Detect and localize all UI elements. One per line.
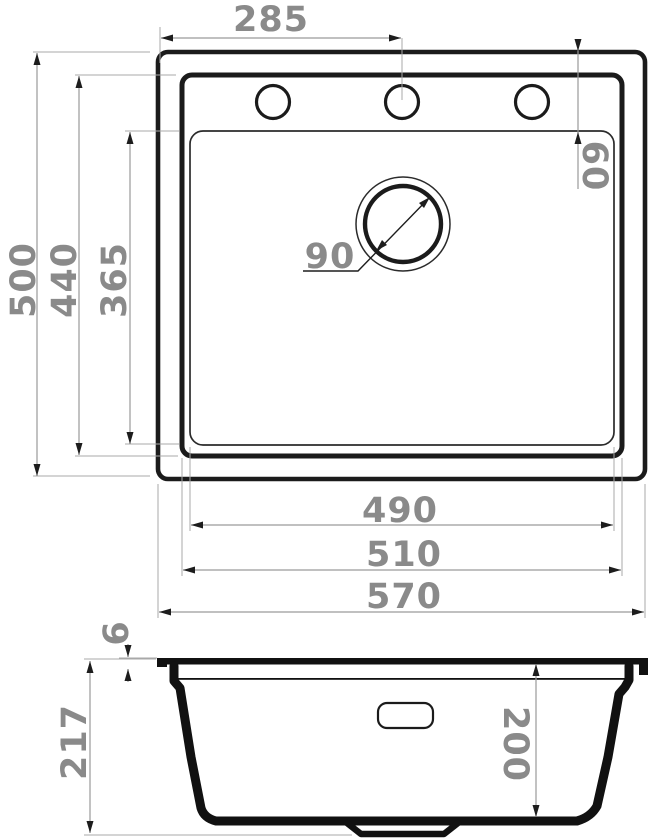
- dim-label-365: 365: [95, 242, 135, 318]
- basin-profile: [174, 666, 629, 821]
- rim-underside-line: [176, 678, 626, 680]
- dim-label-510: 510: [366, 535, 442, 575]
- sink-technical-drawing-page: 90 285 60 500: [0, 0, 656, 840]
- sink-bowl-bottom-edge: [190, 131, 614, 445]
- faucet-hole-left: [257, 86, 290, 119]
- dim-label-490: 490: [362, 491, 438, 531]
- top-view: 90 285 60 500: [4, 0, 645, 618]
- arrowhead: [376, 240, 387, 251]
- dim-label-440: 440: [45, 242, 85, 318]
- dimension-60: 60: [574, 39, 614, 191]
- sink-technical-drawing: 90 285 60 500: [0, 0, 656, 840]
- dim-label-570: 570: [366, 577, 442, 617]
- dimension-6: 6: [97, 620, 157, 682]
- dimension-200: 200: [495, 664, 540, 817]
- dimension-490: 490: [190, 447, 614, 531]
- dim-label-285: 285: [233, 0, 309, 40]
- dim-label-500: 500: [4, 242, 44, 318]
- faucet-hole-right: [516, 86, 549, 119]
- overflow-hole: [378, 703, 433, 728]
- sink-outer-edge: [158, 52, 645, 479]
- sink-bowl-edge: [182, 75, 622, 456]
- dim-label-drain-diameter: 90: [305, 237, 356, 277]
- rim-top: [157, 658, 648, 665]
- rim-right-lip: [639, 658, 648, 675]
- dim-label-200: 200: [495, 706, 535, 782]
- dim-label-60: 60: [574, 141, 614, 192]
- rim-left-lip: [157, 658, 167, 667]
- dim-label-6: 6: [97, 620, 137, 645]
- dim-label-217: 217: [55, 704, 95, 780]
- side-view: 6 217 200: [55, 620, 648, 835]
- dimension-365: 365: [95, 131, 179, 444]
